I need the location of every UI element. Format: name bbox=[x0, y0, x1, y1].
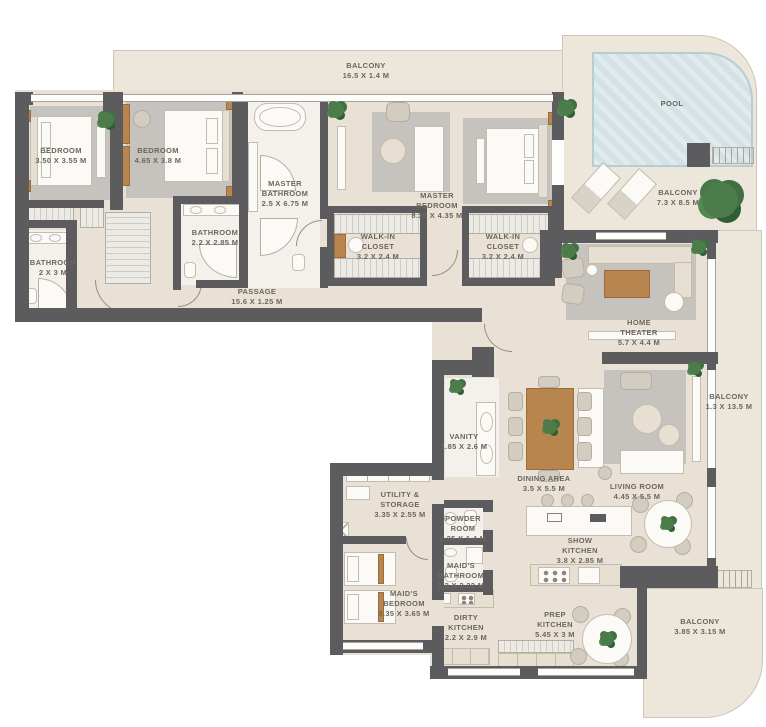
armchair bbox=[620, 372, 652, 390]
kitchen-island bbox=[526, 506, 632, 536]
bathtub-basin bbox=[259, 107, 301, 127]
room-dims: 8.35 X 4.35 M bbox=[377, 211, 497, 221]
toilet bbox=[292, 254, 305, 271]
sink bbox=[444, 548, 457, 557]
range bbox=[538, 567, 570, 584]
room-name: BATHROOM bbox=[0, 258, 113, 268]
wall bbox=[330, 463, 343, 655]
room-name: POWDER ROOM bbox=[428, 514, 498, 534]
wall bbox=[440, 500, 485, 508]
room-name: WALK-IN CLOSET bbox=[443, 232, 563, 252]
plant bbox=[562, 244, 576, 258]
room-label-prep-kitchen: PREP KITCHEN 5.45 X 3 M bbox=[520, 610, 590, 640]
room-dims: 3.2 X 2.4 M bbox=[318, 252, 438, 262]
pillow bbox=[524, 160, 534, 184]
room-dims: 2.2 X 2.9 M bbox=[426, 633, 506, 643]
window bbox=[343, 642, 423, 650]
room-label-maids-bathroom: MAID'S BATHROOM 1.3 X 2.22 M bbox=[421, 561, 501, 591]
dining-chair bbox=[630, 536, 647, 553]
window bbox=[707, 487, 716, 558]
room-dims: 7.3 X 8.5 M bbox=[618, 198, 738, 208]
room-dims: 4.65 X 3.8 M bbox=[98, 156, 218, 166]
room-name: PASSAGE bbox=[197, 287, 317, 297]
sink bbox=[49, 234, 61, 242]
pillow bbox=[347, 594, 359, 620]
room-label-bathroom-1: BATHROOM 2 X 3 M bbox=[0, 258, 113, 278]
room-label-home-theater: HOME THEATER 5.7 X 4.4 M bbox=[579, 318, 699, 348]
room-label-vanity: VANITY 1.85 X 2.6 M bbox=[429, 432, 499, 452]
room-dims: 3.85 X 3.15 M bbox=[655, 627, 745, 637]
room-name: BEDROOM bbox=[98, 146, 218, 156]
window bbox=[707, 259, 716, 352]
plant bbox=[98, 112, 114, 128]
sink bbox=[30, 234, 42, 242]
cooktop bbox=[590, 514, 606, 522]
room-dims: 1.3 X 13.5 M bbox=[694, 402, 764, 412]
kitchen-counter bbox=[498, 653, 574, 667]
room-name: BALCONY bbox=[618, 188, 738, 198]
bed bbox=[486, 128, 546, 194]
room-label-walkin-closet-2: WALK-IN CLOSET 3.2 X 2.4 M bbox=[443, 232, 563, 262]
pillow bbox=[347, 556, 359, 582]
room-name: BALCONY bbox=[306, 61, 426, 71]
armchair bbox=[133, 110, 151, 128]
pillow bbox=[524, 134, 534, 158]
sofa bbox=[414, 126, 444, 192]
window bbox=[596, 232, 666, 240]
plant bbox=[600, 632, 614, 646]
room-label-balcony-pool: BALCONY 7.3 X 8.5 M bbox=[618, 188, 738, 208]
window bbox=[538, 668, 634, 676]
upper-cabinets bbox=[498, 640, 574, 653]
pillow bbox=[41, 122, 51, 148]
balcony-steps bbox=[716, 570, 752, 588]
plant bbox=[661, 517, 674, 530]
room-dims: 1.85 X 2.6 M bbox=[429, 442, 499, 452]
plant bbox=[688, 362, 701, 375]
wall bbox=[15, 308, 482, 322]
wall bbox=[462, 278, 555, 286]
dining-chair bbox=[538, 376, 560, 388]
console-table bbox=[692, 376, 701, 462]
wall bbox=[15, 92, 29, 320]
wall bbox=[432, 360, 494, 375]
cooktop bbox=[458, 593, 475, 605]
room-name: POOL bbox=[612, 99, 732, 109]
pool-pillar bbox=[687, 143, 710, 167]
wall bbox=[707, 468, 716, 487]
plant bbox=[543, 420, 557, 434]
room-dims: 3.2 X 2.4 M bbox=[443, 252, 563, 262]
door-opening bbox=[552, 140, 564, 185]
room-name: WALK-IN CLOSET bbox=[318, 232, 438, 252]
room-label-balcony-right: BALCONY 1.3 X 13.5 M bbox=[694, 392, 764, 412]
armchair bbox=[386, 102, 410, 122]
floor-plan: BALCONY 16.5 X 1.4 M POOL BALCONY 7.3 X … bbox=[0, 0, 766, 727]
room-name: SHOW KITCHEN bbox=[540, 536, 620, 556]
bed-frame bbox=[378, 554, 384, 584]
pool-ledge bbox=[712, 147, 754, 164]
room-dims: 15.6 X 1.25 M bbox=[197, 297, 317, 307]
room-name: MAID'S BEDROOM bbox=[359, 589, 449, 609]
wall bbox=[707, 352, 716, 370]
dining-chair bbox=[577, 392, 592, 411]
dining-chair bbox=[577, 442, 592, 461]
wall bbox=[620, 566, 718, 588]
headboard bbox=[538, 124, 548, 198]
window bbox=[31, 94, 103, 102]
dining-chair bbox=[508, 392, 523, 411]
sink bbox=[480, 412, 493, 432]
window bbox=[448, 668, 520, 676]
wall bbox=[330, 536, 406, 544]
room-dims: 2.25 X 1.4 M bbox=[428, 534, 498, 544]
sink bbox=[190, 206, 202, 214]
room-name: UTILITY & STORAGE bbox=[355, 490, 445, 510]
room-label-powder-room: POWDER ROOM 2.25 X 1.4 M bbox=[428, 514, 498, 544]
coffee-table bbox=[380, 138, 406, 164]
armchair bbox=[561, 257, 586, 280]
headboard bbox=[222, 110, 230, 182]
window bbox=[707, 370, 716, 468]
room-dims: 3.8 X 2.85 M bbox=[540, 556, 620, 566]
wall bbox=[707, 558, 716, 568]
room-dims: 2.2 X 2.85 M bbox=[155, 238, 275, 248]
coffee-table bbox=[604, 270, 650, 298]
room-dims: 4.45 X 5.5 M bbox=[577, 492, 697, 502]
oven bbox=[578, 567, 600, 584]
room-label-bathroom-2: BATHROOM 2.2 X 2.85 M bbox=[155, 228, 275, 248]
wall bbox=[637, 588, 647, 672]
coffee-table bbox=[632, 404, 662, 434]
dining-chair bbox=[577, 417, 592, 436]
room-name: HOME THEATER bbox=[579, 318, 699, 338]
wall bbox=[28, 200, 104, 208]
pouf bbox=[664, 292, 684, 312]
wall bbox=[707, 243, 716, 259]
coffee-table bbox=[658, 424, 680, 446]
room-label-balcony-top: BALCONY 16.5 X 1.4 M bbox=[306, 61, 426, 81]
room-label-bedroom-2: BEDROOM 4.65 X 3.8 M bbox=[98, 146, 218, 166]
room-label-master-bedroom: MASTER BEDROOM 8.35 X 4.35 M bbox=[377, 191, 497, 221]
room-name: PREP KITCHEN bbox=[520, 610, 590, 630]
room-label-pool: POOL bbox=[612, 99, 732, 109]
toilet bbox=[184, 262, 196, 278]
room-dims: 2.5 X 6.75 M bbox=[225, 199, 345, 209]
dining-chair bbox=[508, 442, 523, 461]
room-name: MASTER BEDROOM bbox=[377, 191, 497, 211]
room-name: VANITY bbox=[429, 432, 499, 442]
room-name: LIVING ROOM bbox=[577, 482, 697, 492]
room-label-passage: PASSAGE 15.6 X 1.25 M bbox=[197, 287, 317, 307]
plant bbox=[450, 380, 463, 393]
plant bbox=[692, 240, 706, 254]
room-dims: 16.5 X 1.4 M bbox=[306, 71, 426, 81]
sofa bbox=[620, 450, 684, 474]
dining-chair bbox=[508, 417, 523, 436]
room-name: MAID'S BATHROOM bbox=[421, 561, 501, 581]
wall bbox=[327, 278, 424, 286]
room-label-walkin-closet-1: WALK-IN CLOSET 3.2 X 2.4 M bbox=[318, 232, 438, 262]
room-label-balcony-bottom: BALCONY 3.85 X 3.15 M bbox=[655, 617, 745, 637]
sink bbox=[547, 513, 562, 522]
room-dims: 5.7 X 4.4 M bbox=[579, 338, 699, 348]
room-label-living-room: LIVING ROOM 4.45 X 5.5 M bbox=[577, 482, 697, 502]
plant bbox=[328, 102, 344, 118]
room-dims: 5.45 X 3 M bbox=[520, 630, 590, 640]
room-name: DIRTY KITCHEN bbox=[426, 613, 506, 633]
room-name: BALCONY bbox=[694, 392, 764, 402]
plant bbox=[558, 100, 574, 116]
room-name: BATHROOM bbox=[155, 228, 275, 238]
wall bbox=[330, 463, 440, 476]
room-dims: 2 X 3 M bbox=[0, 268, 113, 278]
side-table bbox=[586, 264, 598, 276]
room-name: BALCONY bbox=[655, 617, 745, 627]
room-label-dirty-kitchen: DIRTY KITCHEN 2.2 X 2.9 M bbox=[426, 613, 506, 643]
room-label-show-kitchen: SHOW KITCHEN 3.8 X 2.85 M bbox=[540, 536, 620, 566]
pillow bbox=[206, 118, 218, 144]
armchair bbox=[561, 283, 586, 306]
wall bbox=[602, 352, 718, 364]
window bbox=[123, 94, 553, 102]
room-name: MASTER BATHROOM bbox=[225, 179, 345, 199]
bench bbox=[476, 138, 485, 184]
room-label-master-bathroom: MASTER BATHROOM 2.5 X 6.75 M bbox=[225, 179, 345, 209]
floor-balcony-bottom bbox=[643, 588, 763, 718]
